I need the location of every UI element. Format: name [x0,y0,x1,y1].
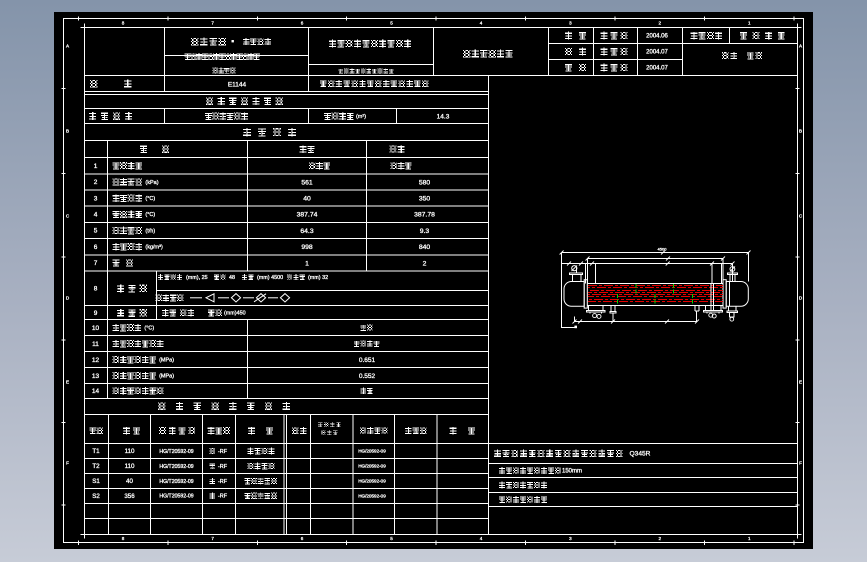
svg-text:7: 7 [211,21,214,26]
svg-text:(mm) 4500: (mm) 4500 [257,275,283,281]
svg-text:HG/20592-09: HG/20592-09 [358,479,386,484]
svg-text:14.3: 14.3 [437,113,450,120]
svg-text:2: 2 [423,260,427,267]
svg-text:7: 7 [211,536,214,541]
svg-text:6: 6 [94,244,98,251]
svg-text:1: 1 [305,260,309,267]
svg-text:T2: T2 [92,463,100,470]
svg-text:11: 11 [92,341,99,348]
svg-text:2: 2 [659,21,662,26]
svg-text:(°C): (°C) [145,196,155,202]
svg-text:10: 10 [92,325,100,332]
svg-text:E: E [66,380,69,385]
svg-text:HG/20592-09: HG/20592-09 [358,493,386,498]
svg-text:4500: 4500 [658,246,668,251]
svg-text:998: 998 [301,244,313,251]
svg-text:4: 4 [480,21,483,26]
svg-text:13: 13 [92,373,100,380]
svg-text:-RF: -RF [218,464,228,470]
svg-text:2004.07: 2004.07 [646,50,668,56]
svg-text:64.3: 64.3 [300,228,313,235]
svg-text:E1144: E1144 [228,81,247,88]
svg-text:9: 9 [94,310,98,317]
svg-text:356: 356 [124,493,135,500]
svg-text:HG/20592-09: HG/20592-09 [358,464,386,469]
svg-text:T1: T1 [92,448,100,455]
svg-text:S1: S1 [92,478,100,485]
svg-text:8: 8 [122,536,125,541]
svg-text:4: 4 [94,212,98,219]
svg-text:5: 5 [390,536,393,541]
svg-text:E: E [799,380,802,385]
svg-text:387.74: 387.74 [297,212,318,219]
svg-text:4: 4 [480,536,483,541]
svg-text:8: 8 [122,21,125,26]
svg-text:B: B [66,129,69,134]
svg-text:(t/h): (t/h) [145,228,155,234]
svg-text:6: 6 [301,536,304,541]
svg-text:110: 110 [125,463,135,470]
svg-text:580: 580 [419,179,431,186]
svg-text:40: 40 [303,195,311,202]
svg-text:(mm)450: (mm)450 [224,311,246,317]
svg-text:(kPa): (kPa) [145,180,158,186]
svg-text:(mm), 25: (mm), 25 [186,275,208,281]
svg-text:150mm: 150mm [562,469,582,475]
svg-text:8: 8 [94,286,98,293]
svg-text:-RF: -RF [218,449,228,455]
svg-text:(m²): (m²) [356,114,366,120]
svg-text:840: 840 [419,244,431,251]
svg-text:110: 110 [125,448,135,455]
svg-text:Q345R: Q345R [630,451,651,458]
svg-text:2: 2 [94,179,98,186]
svg-text:B: B [799,129,802,134]
svg-text:2004.06: 2004.06 [646,34,668,40]
svg-text:(MPa): (MPa) [159,373,174,379]
svg-text:3: 3 [94,195,98,202]
svg-text:48: 48 [229,275,235,281]
svg-text:14: 14 [92,388,100,395]
svg-text:0.651: 0.651 [359,357,376,364]
svg-text:5: 5 [94,228,98,235]
svg-text:(MPa): (MPa) [159,357,174,363]
svg-text:HG/T20592-09: HG/T20592-09 [159,464,193,470]
svg-text:6: 6 [301,21,304,26]
svg-text:3: 3 [569,536,572,541]
svg-text:(kg/m³): (kg/m³) [145,245,163,251]
svg-text:12: 12 [92,357,100,364]
svg-text:5: 5 [390,21,393,26]
svg-text:(mm) 32: (mm) 32 [308,275,328,281]
svg-text:561: 561 [301,179,313,186]
svg-text:2: 2 [659,536,662,541]
svg-text:40: 40 [126,478,133,485]
svg-text:F: F [799,461,802,466]
svg-text:-RF: -RF [218,494,228,500]
svg-text:9.3: 9.3 [420,228,430,235]
svg-text:2004.07: 2004.07 [646,66,668,72]
svg-text:HG/T20592-09: HG/T20592-09 [159,449,193,455]
svg-text:387.78: 387.78 [414,212,435,219]
svg-text:1: 1 [94,163,98,170]
svg-text:3: 3 [569,21,572,26]
svg-text:HG/20592-09: HG/20592-09 [358,449,386,454]
svg-text:HG/T20592-09: HG/T20592-09 [159,479,193,485]
svg-text:S2: S2 [92,493,100,500]
svg-text:1: 1 [748,536,751,541]
svg-text:(°C): (°C) [144,325,154,331]
svg-text:(°C): (°C) [145,212,155,218]
svg-text:1: 1 [748,21,751,26]
svg-text:0.552: 0.552 [359,373,376,380]
svg-text:F: F [66,461,69,466]
svg-text:7: 7 [94,260,98,267]
svg-text:-RF: -RF [218,479,228,485]
svg-text:HG/T20592-09: HG/T20592-09 [159,494,193,500]
svg-text:350: 350 [419,195,431,202]
